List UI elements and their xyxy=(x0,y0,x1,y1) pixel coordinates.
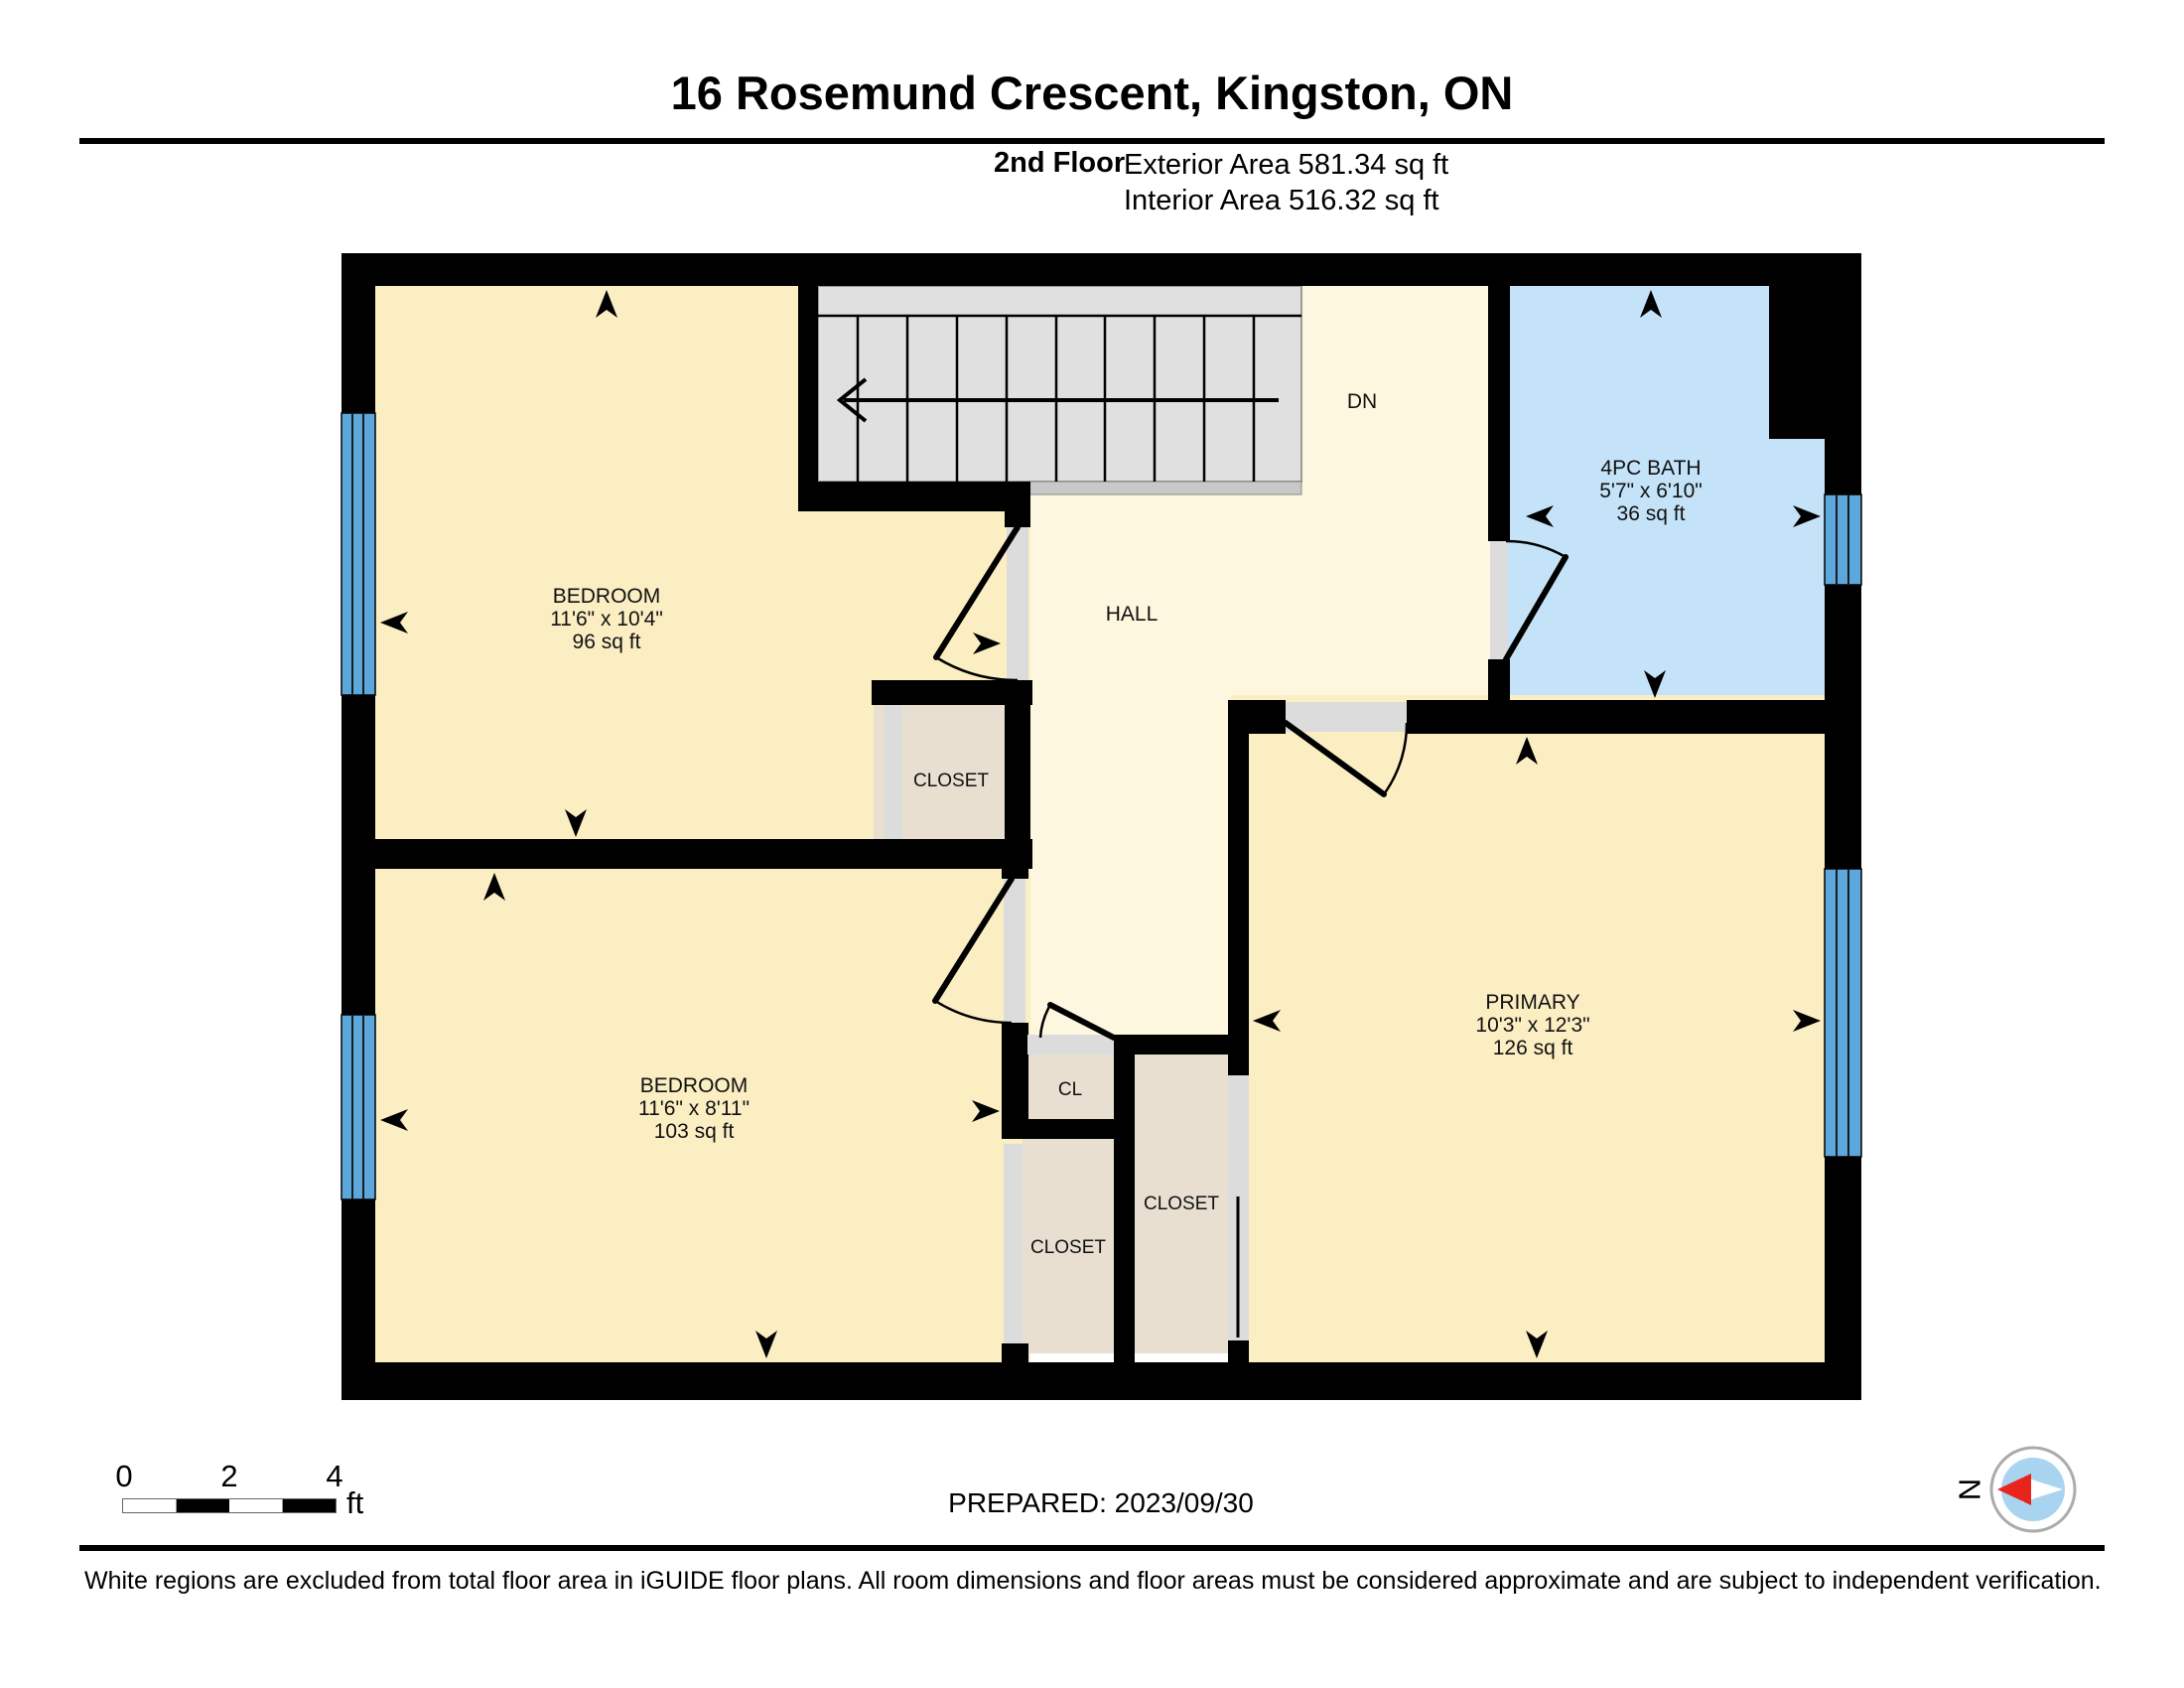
primary-door-opening xyxy=(1286,702,1407,732)
bath-window xyxy=(1825,494,1861,585)
bedroom-bottom-dims: 11'6" x 8'11" xyxy=(638,1097,750,1120)
bedroom-bottom-window xyxy=(341,1015,375,1199)
closet-small-label: CL xyxy=(1058,1079,1082,1100)
footer-disclaimer: White regions are excluded from total fl… xyxy=(84,1567,2119,1596)
closet-bedroom-bottom-label: CLOSET xyxy=(1030,1237,1106,1258)
bedroom-top-dims: 11'6" x 10'4" xyxy=(550,608,663,631)
bath-name: 4PC BATH xyxy=(1600,457,1701,480)
bedroom-top-area: 96 sq ft xyxy=(573,631,641,653)
closet-bedroom-top-label: CLOSET xyxy=(913,771,989,791)
bedroom-bottom-area: 103 sq ft xyxy=(654,1120,735,1143)
primary-name: PRIMARY xyxy=(1485,991,1579,1014)
bath-dims: 5'7" x 6'10" xyxy=(1599,480,1703,502)
bedroom-bottom-name: BEDROOM xyxy=(640,1074,749,1097)
closet-primary-label: CLOSET xyxy=(1144,1194,1219,1214)
hall-label: HALL xyxy=(1106,603,1159,626)
closet-bedroom-top-opening xyxy=(885,705,902,839)
bedroom-top-window xyxy=(341,413,375,695)
stairs-end-cap xyxy=(1029,482,1301,494)
floor-plan-page: 16 Rosemund Crescent, Kingston, ON 2nd F… xyxy=(0,0,2184,1688)
closet-bedroom-bottom-opening xyxy=(1004,1144,1023,1343)
bath-area: 36 sq ft xyxy=(1617,502,1686,525)
primary-area: 126 sq ft xyxy=(1493,1037,1573,1059)
primary-window xyxy=(1825,869,1861,1157)
bedroom-bottom-door-opening xyxy=(1004,879,1025,1023)
stairs-dn-label: DN xyxy=(1347,390,1377,413)
staircase xyxy=(818,286,1301,494)
bedroom-top-door-opening xyxy=(1007,527,1028,680)
footer-divider xyxy=(79,1545,2105,1551)
primary-dims: 10'3" x 12'3" xyxy=(1475,1014,1589,1037)
bedroom-top-name: BEDROOM xyxy=(553,585,661,608)
floor-plan-drawing: BEDROOM 11'6" x 10'4" 96 sq ft BEDROOM 1… xyxy=(0,0,2184,1688)
bath-door-opening xyxy=(1490,541,1508,659)
prepared-date: PREPARED: 2023/09/30 xyxy=(0,1487,2184,1519)
